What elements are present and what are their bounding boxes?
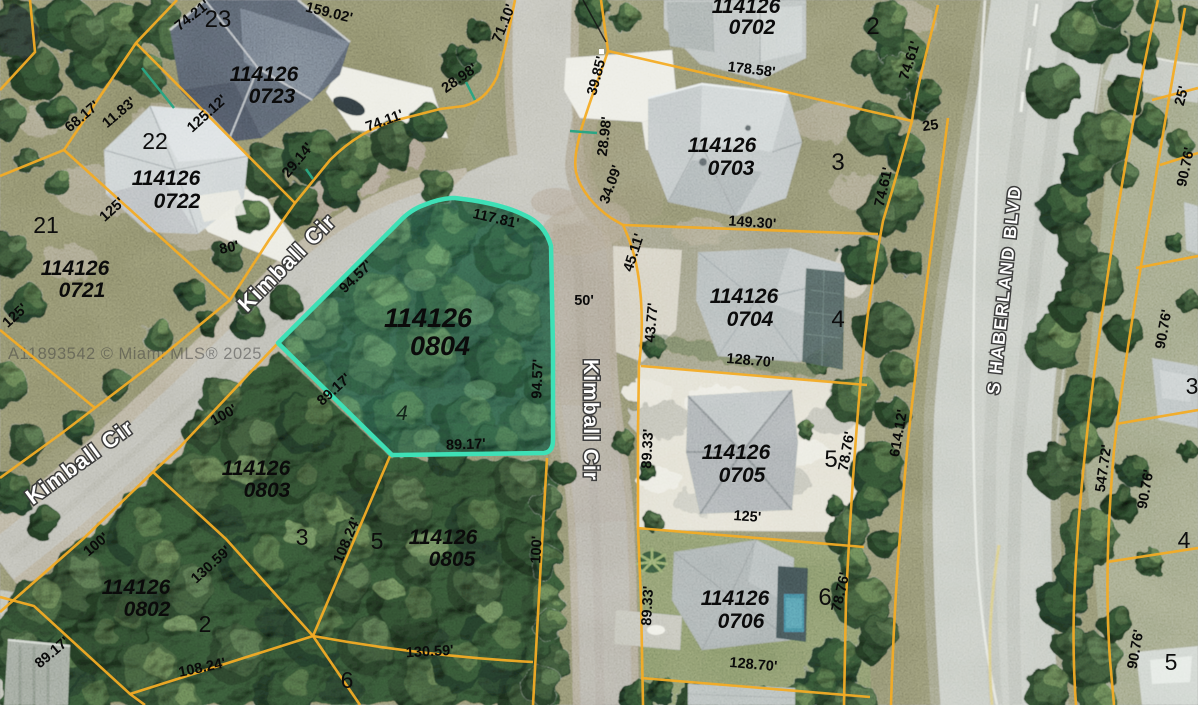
svg-text:3: 3 [1186, 373, 1198, 399]
svg-text:114126: 114126 [102, 576, 171, 599]
svg-text:114126: 114126 [710, 285, 779, 308]
svg-text:0723: 0723 [249, 85, 296, 108]
svg-text:2: 2 [199, 611, 212, 637]
svg-text:0703: 0703 [708, 157, 755, 180]
svg-text:Kimball Cir: Kimball Cir [579, 359, 602, 481]
svg-text:0704: 0704 [727, 308, 774, 331]
svg-text:4: 4 [831, 306, 844, 333]
svg-text:114126: 114126 [222, 457, 291, 480]
svg-text:114126: 114126 [409, 526, 478, 549]
svg-text:0805: 0805 [429, 548, 476, 571]
svg-text:89.17': 89.17' [446, 436, 486, 453]
svg-text:25: 25 [921, 117, 939, 135]
svg-text:114126: 114126 [702, 441, 771, 464]
svg-text:125': 125' [733, 508, 762, 526]
svg-text:114126: 114126 [41, 257, 110, 280]
svg-text:114126: 114126 [384, 303, 473, 333]
svg-text:94.57': 94.57' [529, 359, 546, 399]
svg-text:22: 22 [142, 128, 168, 154]
svg-text:4: 4 [1178, 527, 1191, 553]
svg-text:114126: 114126 [701, 587, 770, 610]
svg-text:100': 100' [528, 536, 545, 564]
svg-text:114126: 114126 [688, 134, 757, 157]
svg-text:A11893542 © Miami MLS® 2025: A11893542 © Miami MLS® 2025 [8, 345, 262, 363]
svg-text:89.33': 89.33' [639, 429, 657, 470]
svg-text:5: 5 [1165, 649, 1178, 675]
svg-text:0722: 0722 [154, 190, 201, 213]
svg-text:0802: 0802 [124, 598, 171, 621]
svg-text:4: 4 [396, 402, 408, 425]
svg-text:114126: 114126 [230, 63, 299, 86]
svg-text:21: 21 [33, 212, 59, 238]
svg-text:0702: 0702 [729, 16, 776, 39]
svg-text:130.59': 130.59' [405, 643, 454, 661]
svg-text:0804: 0804 [410, 331, 470, 361]
svg-text:50': 50' [574, 293, 594, 309]
svg-text:2: 2 [866, 13, 879, 40]
svg-text:89.33': 89.33' [639, 586, 657, 627]
svg-text:3: 3 [296, 524, 309, 550]
svg-text:5: 5 [371, 528, 384, 554]
svg-text:114126: 114126 [132, 167, 201, 190]
svg-text:0721: 0721 [59, 279, 106, 302]
svg-text:0705: 0705 [719, 464, 766, 487]
svg-text:6: 6 [341, 667, 354, 693]
svg-text:0803: 0803 [244, 479, 291, 502]
svg-text:149.30': 149.30' [728, 213, 777, 232]
svg-text:3: 3 [831, 149, 844, 176]
svg-text:0706: 0706 [718, 610, 765, 633]
